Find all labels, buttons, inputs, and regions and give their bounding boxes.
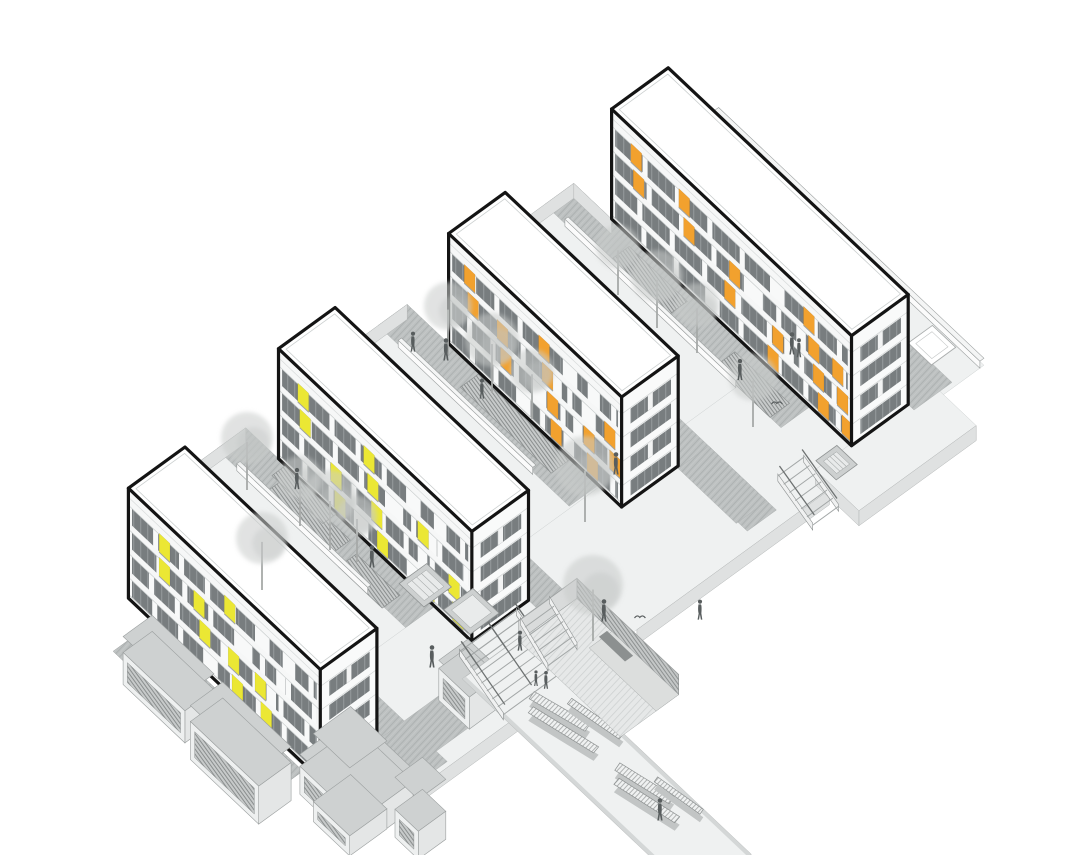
podium-box (395, 757, 446, 855)
person-figure (698, 600, 703, 620)
architectural-axonometric-rendering (0, 0, 1080, 855)
site-axonometric-svg (0, 0, 1080, 855)
